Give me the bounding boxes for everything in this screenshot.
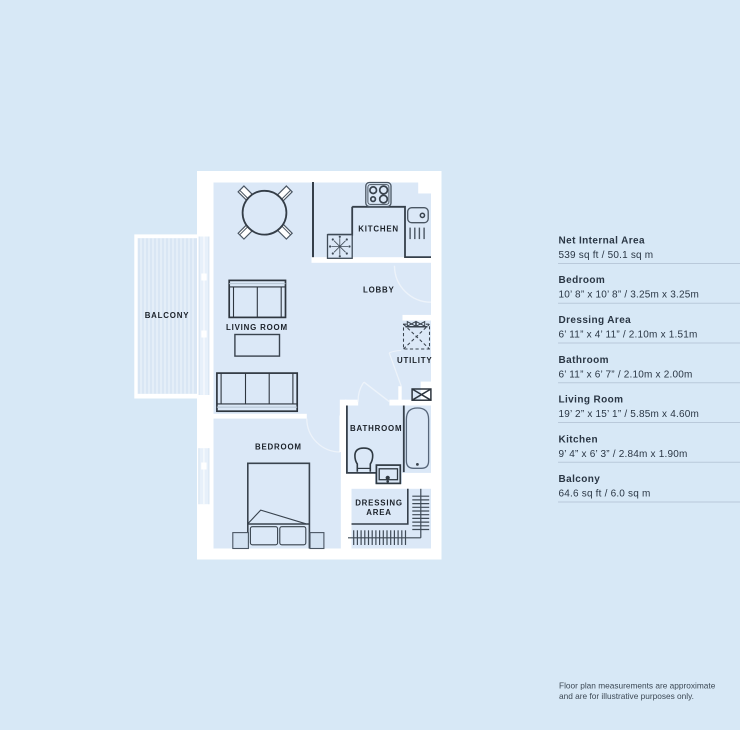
svg-text:BEDROOM: BEDROOM	[255, 442, 302, 451]
svg-text:10’ 8” x 10’ 8” / 3.25m x 3.25: 10’ 8” x 10’ 8” / 3.25m x 3.25m	[559, 290, 700, 301]
svg-text:and are for illustrative purpo: and are for illustrative purposes only.	[559, 691, 694, 701]
svg-text:Balcony: Balcony	[559, 474, 601, 485]
svg-text:LOBBY: LOBBY	[363, 286, 395, 295]
svg-text:64.6 sq ft / 6.0 sq m: 64.6 sq ft / 6.0 sq m	[559, 489, 651, 500]
svg-text:Kitchen: Kitchen	[559, 434, 598, 445]
svg-text:Bedroom: Bedroom	[559, 275, 606, 286]
svg-text:BALCONY: BALCONY	[145, 311, 190, 320]
svg-text:UTILITY: UTILITY	[397, 356, 432, 365]
svg-text:Bathroom: Bathroom	[559, 355, 609, 366]
svg-text:LIVING ROOM: LIVING ROOM	[226, 323, 288, 332]
svg-text:Dressing Area: Dressing Area	[559, 315, 632, 326]
svg-text:Floor plan measurements are ap: Floor plan measurements are approximate	[559, 681, 716, 691]
svg-text:KITCHEN: KITCHEN	[358, 225, 399, 234]
svg-text:AREA: AREA	[366, 508, 392, 517]
svg-text:BATHROOM: BATHROOM	[350, 424, 402, 433]
svg-text:9’ 4” x 6’ 3” / 2.84m x 1.90m: 9’ 4” x 6’ 3” / 2.84m x 1.90m	[559, 449, 688, 460]
svg-text:Living Room: Living Room	[559, 395, 624, 406]
svg-text:6’ 11” x 6’ 7” / 2.10m x 2.00m: 6’ 11” x 6’ 7” / 2.10m x 2.00m	[559, 369, 693, 380]
svg-text:Net Internal Area: Net Internal Area	[559, 235, 645, 246]
svg-text:19’ 2” x 15’ 1” / 5.85m x 4.60: 19’ 2” x 15’ 1” / 5.85m x 4.60m	[559, 409, 700, 420]
svg-text:6’ 11” x 4’ 11” / 2.10m x 1.51: 6’ 11” x 4’ 11” / 2.10m x 1.51m	[559, 330, 698, 341]
svg-text:539 sq ft / 50.1 sq m: 539 sq ft / 50.1 sq m	[559, 250, 654, 261]
svg-text:DRESSING: DRESSING	[355, 499, 403, 508]
